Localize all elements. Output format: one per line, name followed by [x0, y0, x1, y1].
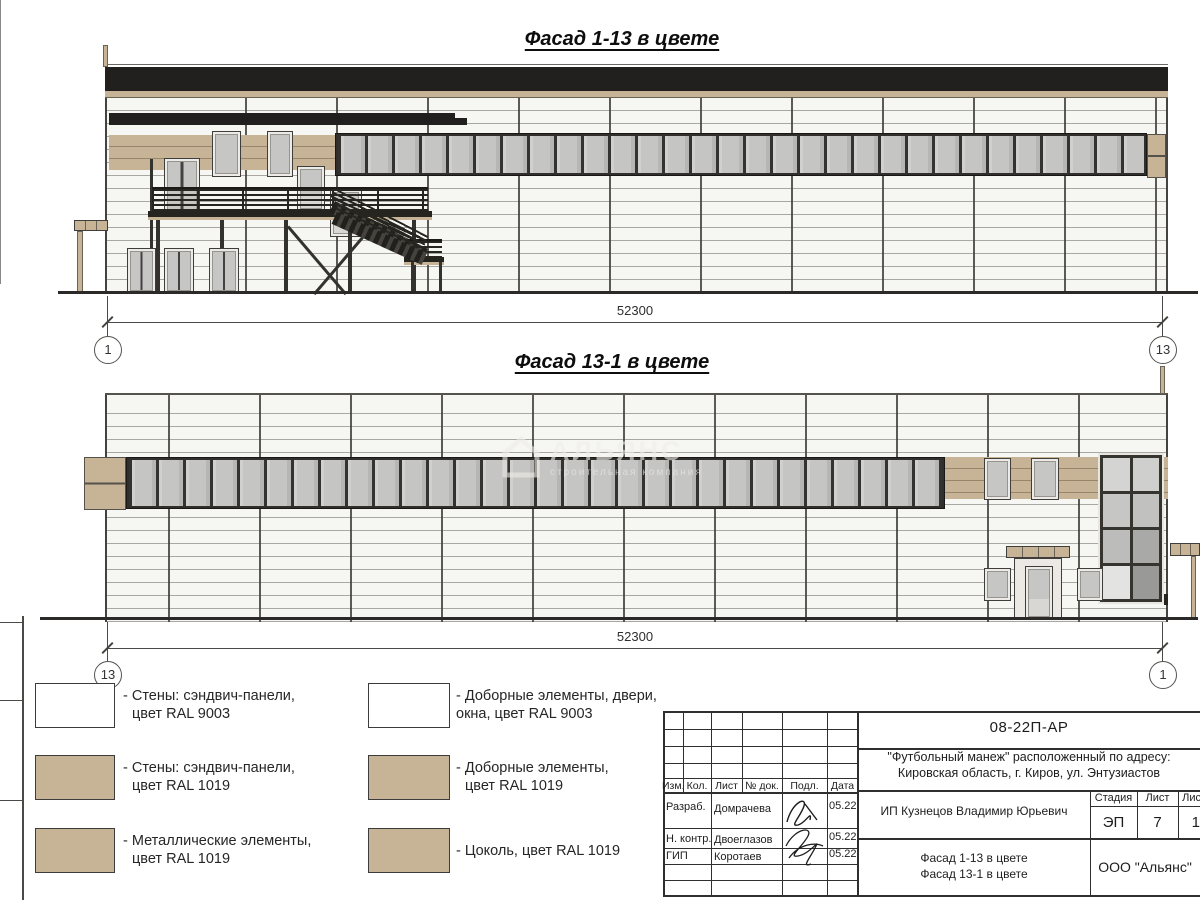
col-data: Дата: [828, 780, 857, 792]
row-role: ГИП: [666, 850, 688, 862]
ribbon-glazing: [129, 460, 942, 506]
ribbon-glazing: [338, 136, 1144, 173]
dimension-line: [107, 648, 1163, 649]
legend-item: - Стены: сэндвич-панели,цвет RAL 9003: [123, 687, 343, 723]
sheets-total: 17: [1178, 814, 1200, 831]
legend-item: - Доборные элементы,цвет RAL 1019: [456, 759, 686, 795]
col-list: Лист: [712, 780, 741, 792]
row-role: Н. контр.: [666, 833, 711, 845]
axis-marker-13: 13: [1149, 336, 1177, 364]
facade-1-13-title: Фасад 1-13 в цвете: [497, 28, 747, 51]
upper-window: [268, 132, 292, 176]
project-name-line2: Кировская область, г. Киров, ул. Энтузиа…: [860, 766, 1198, 780]
upper-window: [213, 132, 240, 176]
organization-name: ООО "Альянс": [1090, 859, 1200, 875]
legend-swatch: [35, 755, 115, 800]
band-window: [1032, 459, 1058, 499]
entrance-door: [1026, 567, 1052, 619]
entrance-door: [165, 249, 193, 293]
window-ribbon: [126, 457, 945, 509]
legend-item: - Металлические элементы,цвет RAL 1019: [123, 832, 353, 868]
doc-number: 08-22П-АР: [860, 719, 1198, 736]
facade-13-1-title: Фасад 13-1 в цвете: [487, 351, 737, 374]
facade-1-13-elevation: [105, 64, 1168, 294]
ground-window: [1078, 569, 1102, 600]
sheet-label: Лист: [1137, 792, 1178, 804]
col-podp: Подл.: [783, 780, 826, 792]
sheet-number: 7: [1137, 814, 1178, 831]
axis-marker-1: 1: [94, 336, 122, 364]
tan-end-panel: [84, 457, 126, 510]
side-canopy: [1170, 543, 1200, 556]
window-ribbon: [335, 133, 1147, 176]
project-name-line1: "Футбольный манеж" расположенный по адре…: [860, 750, 1198, 764]
row-date: 05.22: [829, 831, 857, 843]
col-izm: Изм.: [662, 780, 684, 792]
parapet-trim: [105, 91, 1168, 98]
legend-item: - Цоколь, цвет RAL 1019: [456, 842, 686, 860]
row-date: 05.22: [829, 800, 857, 812]
row-name: Домрачева: [714, 803, 771, 815]
col-kol: Кол.: [684, 780, 710, 792]
ground-line: [40, 617, 1198, 620]
legend-swatch: [368, 683, 450, 728]
drawing-title-line2: Фасад 13-1 в цвете: [860, 867, 1088, 881]
entrance-door: [128, 249, 155, 293]
legend-item: - Стены: сэндвич-панели,цвет RAL 1019: [123, 759, 343, 795]
entrance-door: [210, 249, 238, 293]
row-name: Коротаев: [714, 851, 762, 863]
sheets-label: Листов: [1178, 792, 1200, 804]
row-date: 05.22: [829, 848, 857, 860]
entrance-canopy: [1006, 546, 1070, 558]
ground-line: [58, 291, 1198, 294]
signature: [781, 824, 827, 872]
axis-marker-1: 1: [1149, 661, 1177, 689]
curtain-wall-glazing: [1100, 455, 1162, 602]
client-name: ИП Кузнецов Владимир Юрьевич: [860, 804, 1088, 818]
drawing-title-line1: Фасад 1-13 в цвете: [860, 851, 1088, 865]
flagpole: [103, 45, 108, 67]
band-window: [985, 459, 1010, 499]
flagpole: [1160, 366, 1165, 394]
row-role: Разраб.: [666, 801, 706, 813]
stage-label: Стадия: [1090, 792, 1137, 804]
side-canopy: [74, 220, 108, 231]
legend-item: - Доборные элементы, двери,окна, цвет RA…: [456, 687, 686, 723]
canopy-post: [77, 231, 83, 292]
balcony-railing: [152, 187, 428, 213]
facade-13-1-elevation: [105, 393, 1168, 622]
legend-swatch: [35, 828, 115, 873]
dimension-line: [107, 322, 1163, 323]
stage-value: ЭП: [1090, 814, 1137, 831]
col-doc: № док.: [743, 780, 781, 792]
parapet-band: [105, 67, 1168, 91]
ground-window: [985, 569, 1010, 600]
legend-swatch: [368, 755, 450, 800]
drawing-sheet: Фасад 1-13 в цвете: [0, 0, 1200, 900]
metal-band: [109, 113, 455, 125]
row-name: Двоеглазов: [714, 834, 772, 846]
dimension-value: 52300: [560, 303, 710, 318]
legend-swatch: [368, 828, 450, 873]
dimension-value: 52300: [560, 629, 710, 644]
wall-edge-mark: [1164, 594, 1168, 605]
tan-end-panel: [1147, 134, 1166, 178]
legend-swatch: [35, 683, 115, 728]
canopy-post: [1191, 556, 1196, 618]
metal-band-step: [453, 118, 467, 125]
